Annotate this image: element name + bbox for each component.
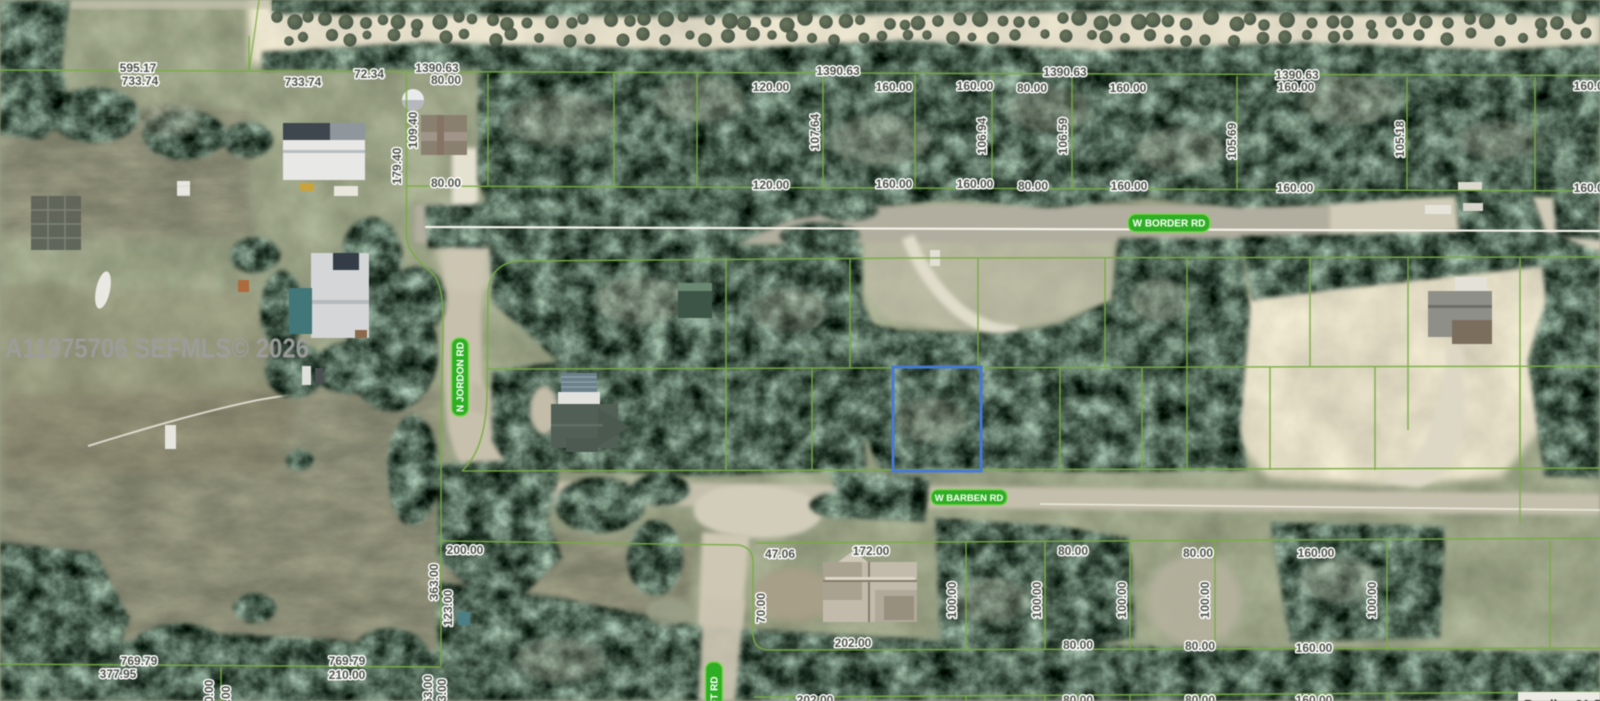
svg-text:100.00: 100.00 xyxy=(1365,581,1379,618)
svg-text:100.00: 100.00 xyxy=(1030,581,1044,618)
svg-text:80.00: 80.00 xyxy=(431,176,461,190)
svg-text:100.00: 100.00 xyxy=(1115,581,1129,618)
svg-text:363.00: 363.00 xyxy=(427,563,441,600)
svg-text:W BARBEN RD: W BARBEN RD xyxy=(935,493,1004,504)
svg-text:769.79: 769.79 xyxy=(121,654,158,668)
svg-text:123.00: 123.00 xyxy=(441,589,455,626)
svg-text:80.00: 80.00 xyxy=(1058,544,1088,558)
svg-text:N KRAFT RD: N KRAFT RD xyxy=(710,676,721,701)
svg-text:200.00: 200.00 xyxy=(447,543,484,557)
svg-text:202.00: 202.00 xyxy=(797,693,834,701)
svg-text:109.40: 109.40 xyxy=(406,111,420,148)
svg-text:80.00: 80.00 xyxy=(431,73,461,87)
svg-text:380.00: 380.00 xyxy=(202,679,216,701)
svg-text:160.00: 160.00 xyxy=(1574,181,1600,195)
svg-text:100.00: 100.00 xyxy=(945,581,959,618)
svg-text:80.00: 80.00 xyxy=(1017,81,1047,95)
svg-text:120.00: 120.00 xyxy=(753,80,790,94)
svg-text:80.00: 80.00 xyxy=(1185,639,1215,653)
svg-text:1390.63: 1390.63 xyxy=(816,64,860,78)
svg-text:106.94: 106.94 xyxy=(975,117,989,154)
svg-text:N JORDON RD: N JORDON RD xyxy=(456,342,467,412)
svg-text:733.74: 733.74 xyxy=(122,74,159,88)
svg-text:80.00: 80.00 xyxy=(1183,546,1213,560)
svg-text:80.00: 80.00 xyxy=(1185,693,1215,701)
svg-text:210.00: 210.00 xyxy=(329,668,366,682)
svg-text:160.00: 160.00 xyxy=(1111,179,1148,193)
svg-text:213.00: 213.00 xyxy=(435,678,449,701)
svg-text:80.00: 80.00 xyxy=(1063,693,1093,701)
svg-text:377.95: 377.95 xyxy=(100,667,137,681)
svg-text:160.00: 160.00 xyxy=(1110,81,1147,95)
svg-text:100.00: 100.00 xyxy=(1198,581,1212,618)
svg-text:769.79: 769.79 xyxy=(329,654,366,668)
svg-text:160.00: 160.00 xyxy=(1296,693,1333,701)
svg-text:70.00: 70.00 xyxy=(754,593,768,623)
svg-text:160.00: 160.00 xyxy=(1298,546,1335,560)
svg-text:172.00: 172.00 xyxy=(853,544,890,558)
svg-text:179.40: 179.40 xyxy=(390,147,404,184)
svg-text:160.00: 160.00 xyxy=(957,79,994,93)
svg-text:80.00: 80.00 xyxy=(1018,179,1048,193)
svg-text:160.00: 160.00 xyxy=(876,80,913,94)
svg-text:160.00: 160.00 xyxy=(957,177,994,191)
svg-text:A11975706 SEFMLS© 2026: A11975706 SEFMLS© 2026 xyxy=(5,333,309,364)
svg-text:160.00: 160.00 xyxy=(876,177,913,191)
svg-text:120.00: 120.00 xyxy=(753,178,790,192)
svg-text:Bradley 21-5: Bradley 21-5 xyxy=(1524,697,1600,701)
svg-text:160.00: 160.00 xyxy=(1277,181,1314,195)
svg-text:63.00: 63.00 xyxy=(421,675,435,701)
svg-text:1390.63: 1390.63 xyxy=(1043,65,1087,79)
svg-text:595.17: 595.17 xyxy=(120,61,157,75)
svg-text:105.69: 105.69 xyxy=(1225,122,1239,159)
svg-text:106.59: 106.59 xyxy=(1056,117,1070,154)
svg-text:105.18: 105.18 xyxy=(1393,120,1407,157)
svg-text:383.00: 383.00 xyxy=(219,685,233,701)
svg-text:107.64: 107.64 xyxy=(808,113,822,150)
svg-text:80.00: 80.00 xyxy=(1063,638,1093,652)
svg-text:160.00: 160.00 xyxy=(1278,80,1315,94)
svg-text:72.34: 72.34 xyxy=(354,67,384,81)
svg-text:160.00: 160.00 xyxy=(1296,641,1333,655)
svg-text:733.74: 733.74 xyxy=(285,75,322,89)
svg-text:202.00: 202.00 xyxy=(835,636,872,650)
svg-text:160.00: 160.00 xyxy=(1574,79,1600,93)
svg-text:W BORDER RD: W BORDER RD xyxy=(1133,219,1206,230)
svg-text:47.06: 47.06 xyxy=(765,547,795,561)
